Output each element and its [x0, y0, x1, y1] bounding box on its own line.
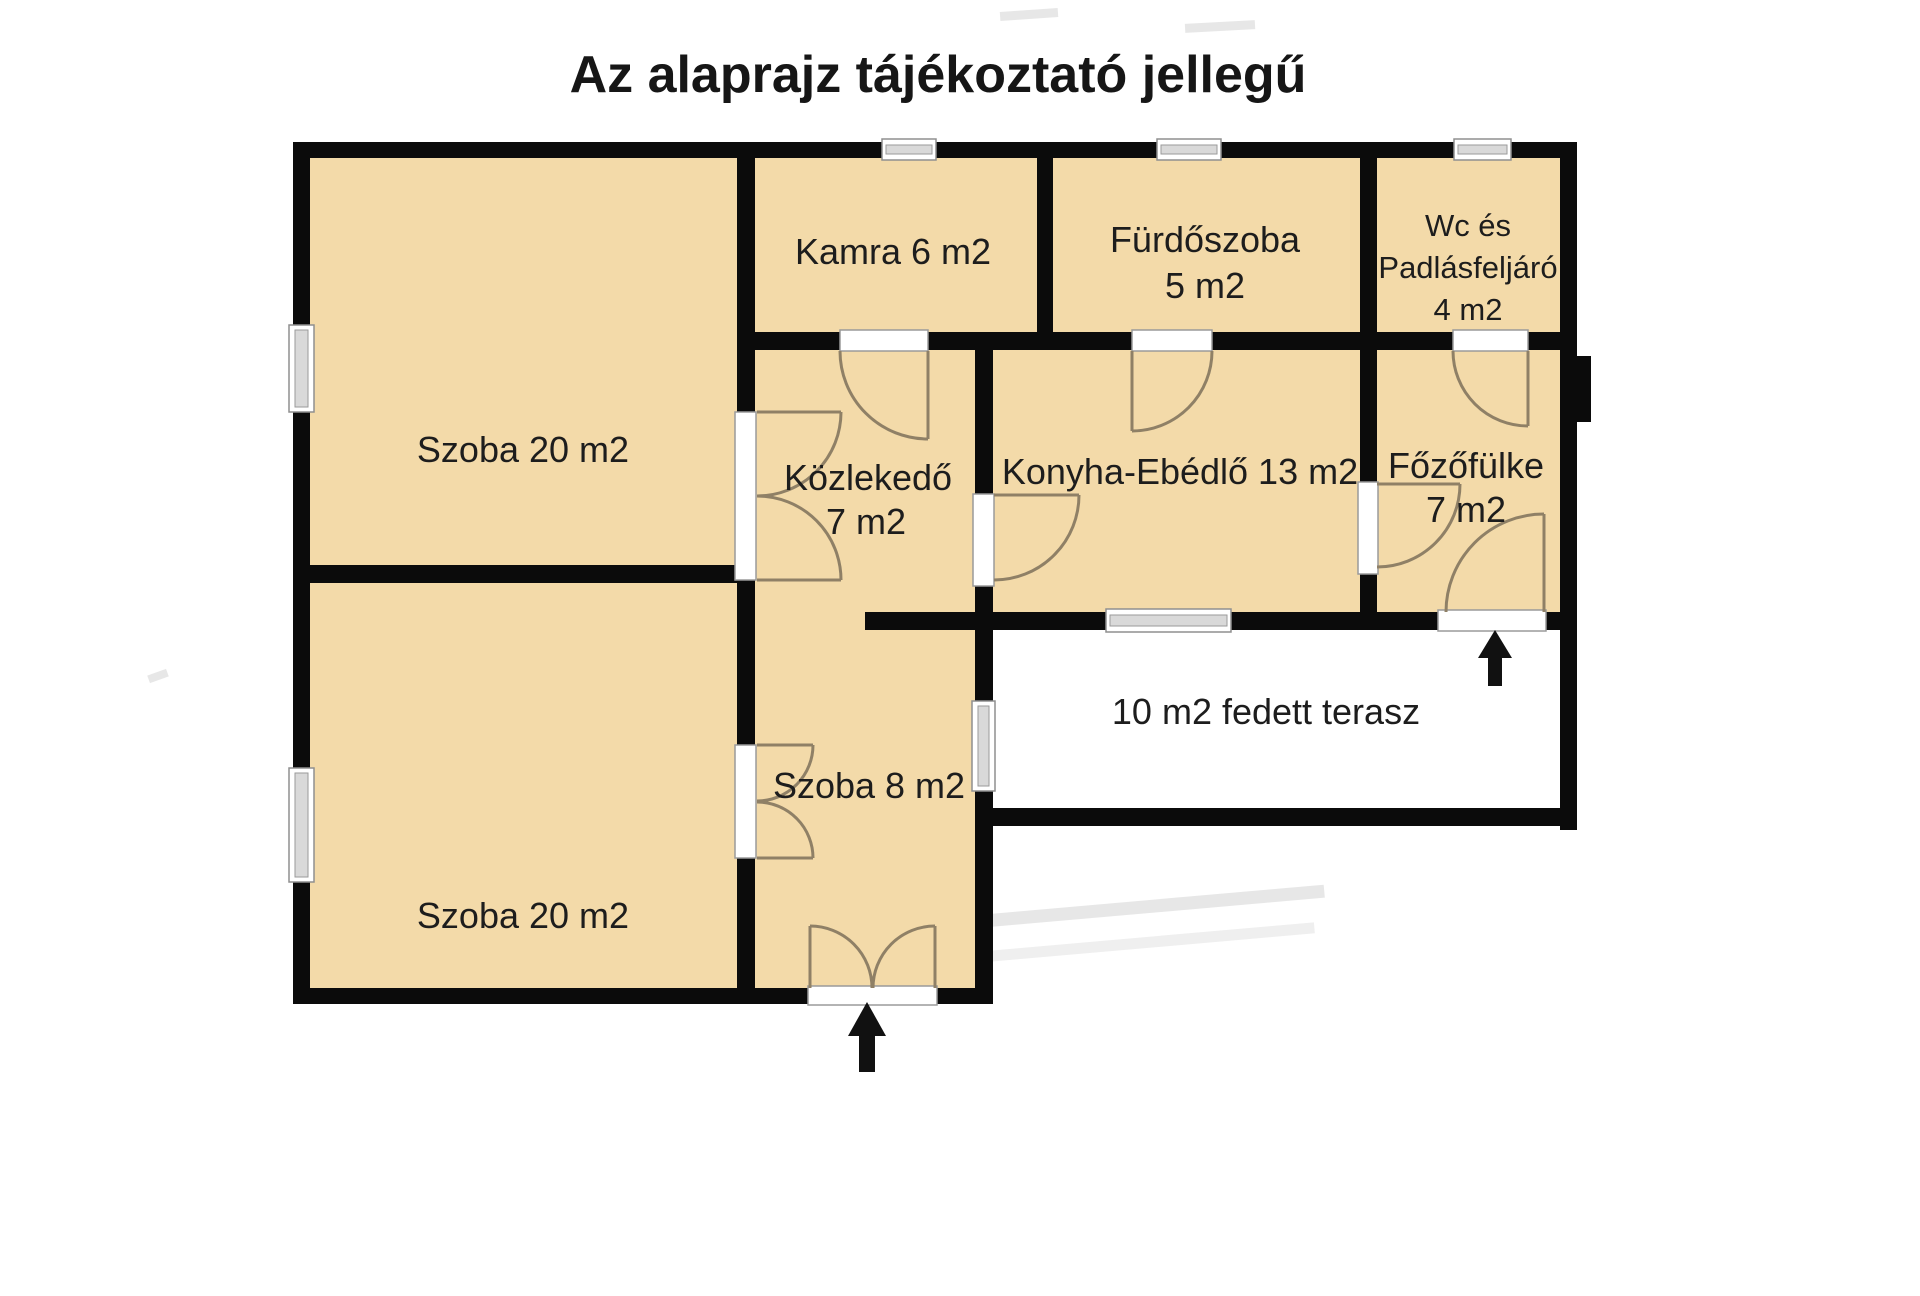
room-label-kozlekedo: Közlekedő	[784, 457, 952, 498]
room-label-wc-line1: Wc és	[1425, 208, 1511, 243]
wall-kamra-furdoszoba	[1037, 142, 1053, 350]
door-opening	[735, 745, 756, 858]
floorplan-page: Az alaprajz tájékoztató jellegű	[0, 0, 1920, 1296]
room-fill	[755, 350, 975, 988]
door-opening	[973, 494, 994, 586]
wall-terasz-bottom	[993, 808, 1577, 826]
room-label-kamra: Kamra 6 m2	[795, 231, 991, 272]
room-label-wc-line2: Padlásfeljáró	[1378, 250, 1557, 285]
window	[289, 768, 314, 882]
window	[1106, 609, 1231, 632]
room-label-wc-line3: 4 m2	[1434, 292, 1503, 327]
room-label-szoba8: Szoba 8 m2	[773, 765, 965, 806]
wall-kozlekedo-konyha	[975, 350, 993, 1003]
door-opening	[1358, 482, 1378, 574]
room-area-furdoszoba: 5 m2	[1165, 265, 1245, 306]
door-opening	[840, 330, 928, 351]
window	[882, 139, 936, 160]
wall-kozlekedo-szoba8-stub	[865, 612, 975, 630]
door-opening	[1132, 330, 1212, 351]
room-label-fozofulke: Főzőfülke	[1388, 445, 1544, 486]
wall-chimney-bump	[1575, 356, 1591, 422]
floorplan: Az alaprajz tájékoztató jellegű	[0, 0, 1920, 1296]
window	[972, 701, 995, 791]
wall-right	[1560, 142, 1577, 830]
room-label-konyha-ebedlo: Konyha-Ebédlő 13 m2	[1002, 451, 1358, 492]
room-label-furdoszoba: Fürdőszoba	[1110, 219, 1301, 260]
room-label-szoba-felso: Szoba 20 m2	[417, 429, 629, 470]
room-label-szoba-also: Szoba 20 m2	[417, 895, 629, 936]
room-area-fozofulke: 7 m2	[1426, 489, 1506, 530]
window	[289, 325, 314, 412]
window	[1454, 139, 1511, 160]
door-opening	[808, 986, 937, 1005]
door-opening	[1438, 610, 1546, 631]
page-title: Az alaprajz tájékoztató jellegű	[570, 46, 1307, 104]
window	[1157, 139, 1221, 160]
door-opening	[735, 412, 756, 580]
room-label-terasz: 10 m2 fedett terasz	[1112, 691, 1420, 732]
door-opening	[1453, 330, 1528, 351]
room-area-kozlekedo: 7 m2	[826, 501, 906, 542]
wall-divider-left-rooms	[293, 565, 755, 583]
